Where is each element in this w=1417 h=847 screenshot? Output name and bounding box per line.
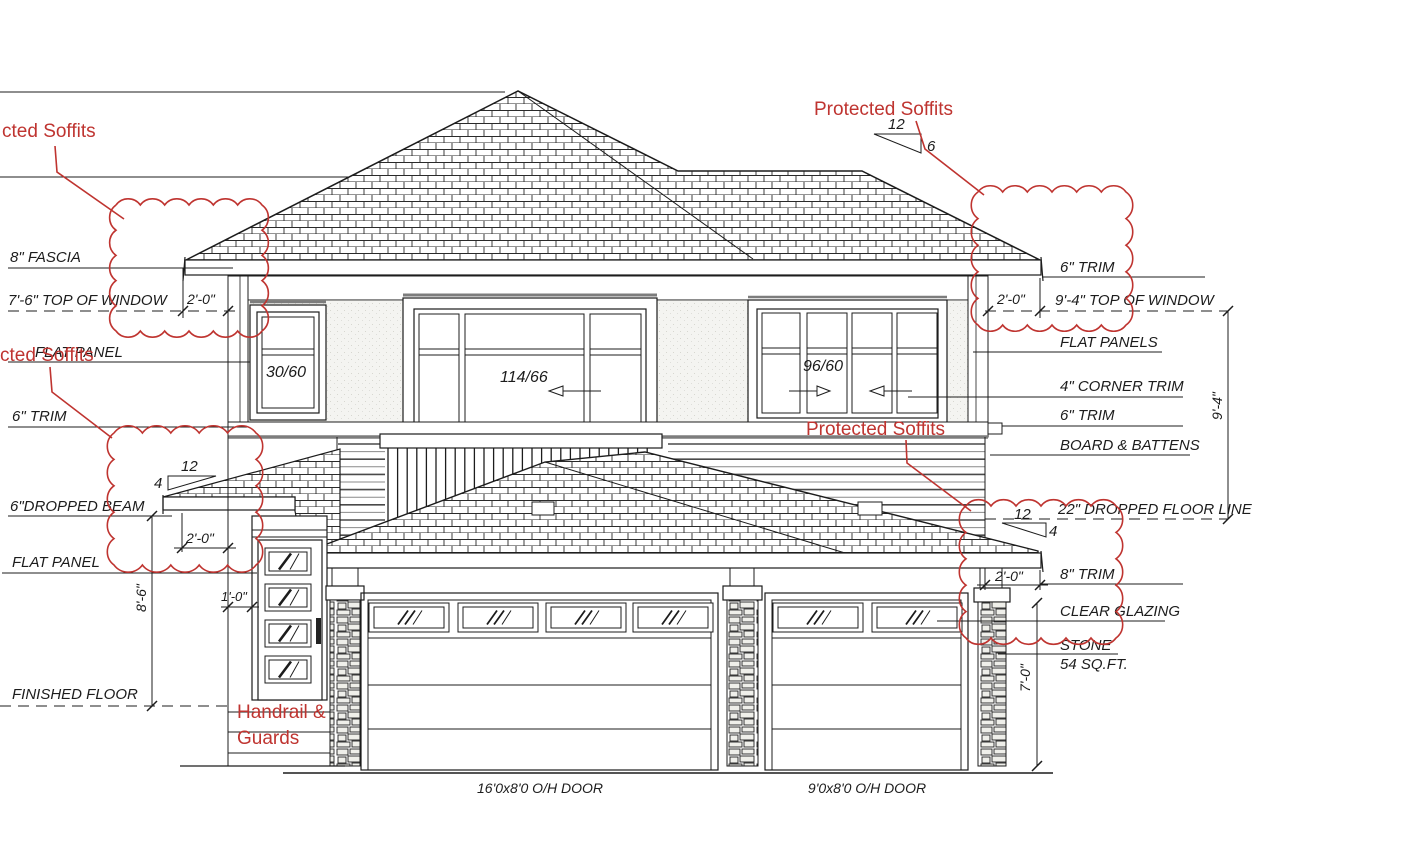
porch-fascia [163,497,295,510]
door-labels: 16'0x8'0 O/H DOOR 9'0x8'0 O/H DOOR [477,780,926,796]
corner-trim-right [968,276,988,437]
note-handrail-line2: Guards [237,728,299,749]
label-board-battens: BOARD & BATTENS [1060,437,1200,454]
label-corner-trim: 4" CORNER TRIM [1060,378,1184,395]
slope-run: 12 [181,458,198,475]
dim-beam-overhang: 2'-0" [185,530,215,546]
roof-vent [532,502,554,515]
corner-trim-left [228,276,248,437]
stone-pillar-left [330,600,360,766]
window-size-label: 30/60 [266,364,306,381]
dim-eave-right: 2'-0" [996,291,1026,307]
stone-pillar-middle [727,600,758,766]
left-annotations: 8" FASCIA 7'-6" TOP OF WINDOW FLAT PANEL… [0,249,257,706]
door-handle [316,618,321,644]
window-center-114-66: 114/66 [403,295,657,437]
garage-door-small-label: 9'0x8'0 O/H DOOR [808,780,926,796]
note-protected-soffits-clipped-top: cted Soffits [2,121,96,142]
label-fascia: 8" FASCIA [10,249,81,266]
slope-rise-lower: 4 [154,475,162,492]
red-leader [906,440,971,511]
handrail-top [380,434,662,448]
label-stone-area: 54 SQ.FT. [1060,656,1128,673]
dim-eave-left: 2'-0" [186,291,216,307]
label-dropped-beam: 6"DROPPED BEAM [10,498,145,515]
label-trim6-left: 6" TRIM [12,408,67,425]
note-protected-soffits-clipped-mid: cted Soffits [0,345,94,366]
note-protected-soffits-mid: Protected Soffits [806,419,945,440]
stone-pillar-right [978,602,1006,766]
label-dropped-floor: 22" DROPPED FLOOR LINE [1057,501,1253,518]
dim-eave-lower-right: 2'-0" [994,568,1024,584]
pillar-cap [723,586,762,600]
pillar-cap [974,588,1010,602]
dim-entry-jog: 1'-0" [221,589,248,604]
red-leader [916,121,984,195]
dim-garage-opening: 7'-0" [1017,663,1033,692]
window-size-label: 114/66 [500,369,548,386]
label-trim6-top-right: 6" TRIM [1060,259,1115,276]
dim-entry-height: 8'-6" [133,583,149,612]
window-size-label: 96/60 [803,358,843,375]
elevation-drawing-canvas: 30/60 114/66 96/60 [0,0,1417,847]
elevation-drawing: 30/60 114/66 96/60 [0,0,1417,847]
pillar-cap [326,586,364,600]
fascia-band [185,260,1041,275]
label-top-of-window-left: 7'-6" TOP OF WINDOW [8,292,169,309]
window-right-96-60: 96/60 [748,297,947,423]
label-trim8: 8" TRIM [1060,566,1115,583]
window-left-30-60: 30/60 [250,302,326,420]
slope-rise-lower: 4 [1049,523,1057,540]
garage-door-large [361,593,718,770]
label-flat-panels: FLAT PANELS [1060,334,1158,351]
label-flat-panel-lower: FLAT PANEL [12,554,100,571]
garage-door-small [765,593,968,770]
roof-vent [858,502,882,515]
label-finished-floor: FINISHED FLOOR [12,686,138,703]
slope-run: 12 [1014,506,1031,523]
stone-pillars [326,568,1010,766]
note-protected-soffits-top-right: Protected Soffits [814,99,953,120]
dim-upper-window: 9'-4" [1209,391,1225,420]
label-trim6-right: 6" TRIM [1060,407,1115,424]
note-handrail-line1: Handrail & [237,702,326,723]
garage-door-large-label: 16'0x8'0 O/H DOOR [477,780,603,796]
garage-fascia [300,553,1041,568]
label-top-of-window-right: 9'-4" TOP OF WINDOW [1055,292,1216,309]
